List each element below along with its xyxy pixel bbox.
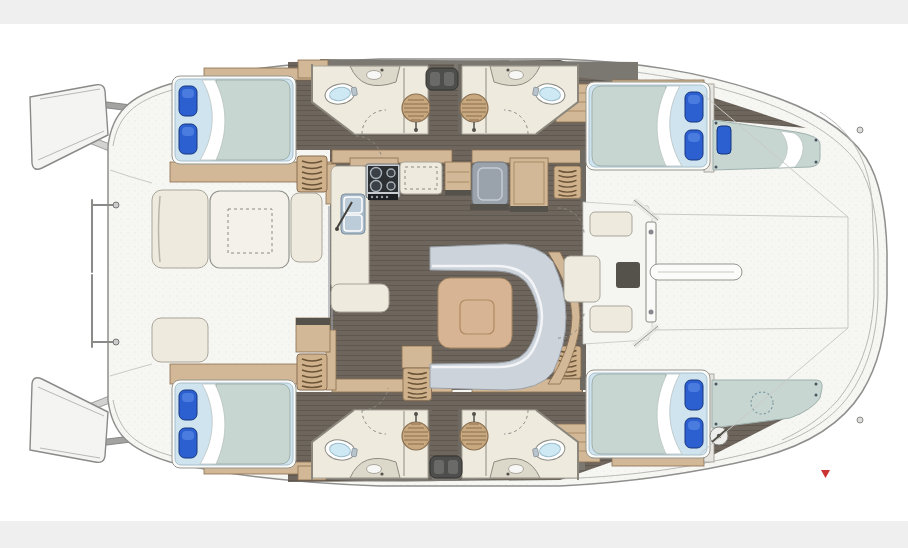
cockpit-bench-right xyxy=(291,193,322,262)
port-fwd-steps xyxy=(554,166,581,198)
salon xyxy=(430,244,580,390)
starboard-aft-steps xyxy=(297,354,327,390)
floor-plan-page xyxy=(0,0,908,548)
salon-table xyxy=(438,278,512,348)
lounge-seat-aft xyxy=(590,306,632,332)
galley-stove xyxy=(366,164,400,200)
lounge-seat-side xyxy=(564,256,600,302)
lounge-seat-fwd xyxy=(590,212,632,236)
galley-fridge xyxy=(470,162,510,210)
galley-shelf xyxy=(445,162,471,192)
salon-cabinet xyxy=(402,346,432,368)
port-aft-steps xyxy=(297,156,327,192)
bottom-margin-band xyxy=(0,521,908,548)
bow-cleat-top xyxy=(857,127,863,133)
top-margin-band xyxy=(0,0,908,24)
lounge-side-table xyxy=(616,262,640,288)
salon-locker-steps xyxy=(403,368,432,400)
red-marker-icon xyxy=(821,470,830,478)
deck-hatch-top xyxy=(426,68,458,90)
galley-cabinet xyxy=(510,158,548,212)
port-aft-cabin-bed xyxy=(172,76,296,164)
starboard-fwd-cabin-bed xyxy=(586,370,710,458)
cockpit-seat-aft xyxy=(152,318,208,362)
deck-hatch-bottom xyxy=(430,456,462,478)
floor-plan-drawing xyxy=(0,0,908,548)
bow-cleat-bottom xyxy=(857,417,863,423)
cockpit-l-bench xyxy=(152,190,208,268)
starboard-aft-cabin-bed xyxy=(172,380,296,468)
windlass xyxy=(710,427,728,445)
cockpit-table xyxy=(210,191,289,268)
port-fwd-cabin-bed xyxy=(586,82,710,170)
